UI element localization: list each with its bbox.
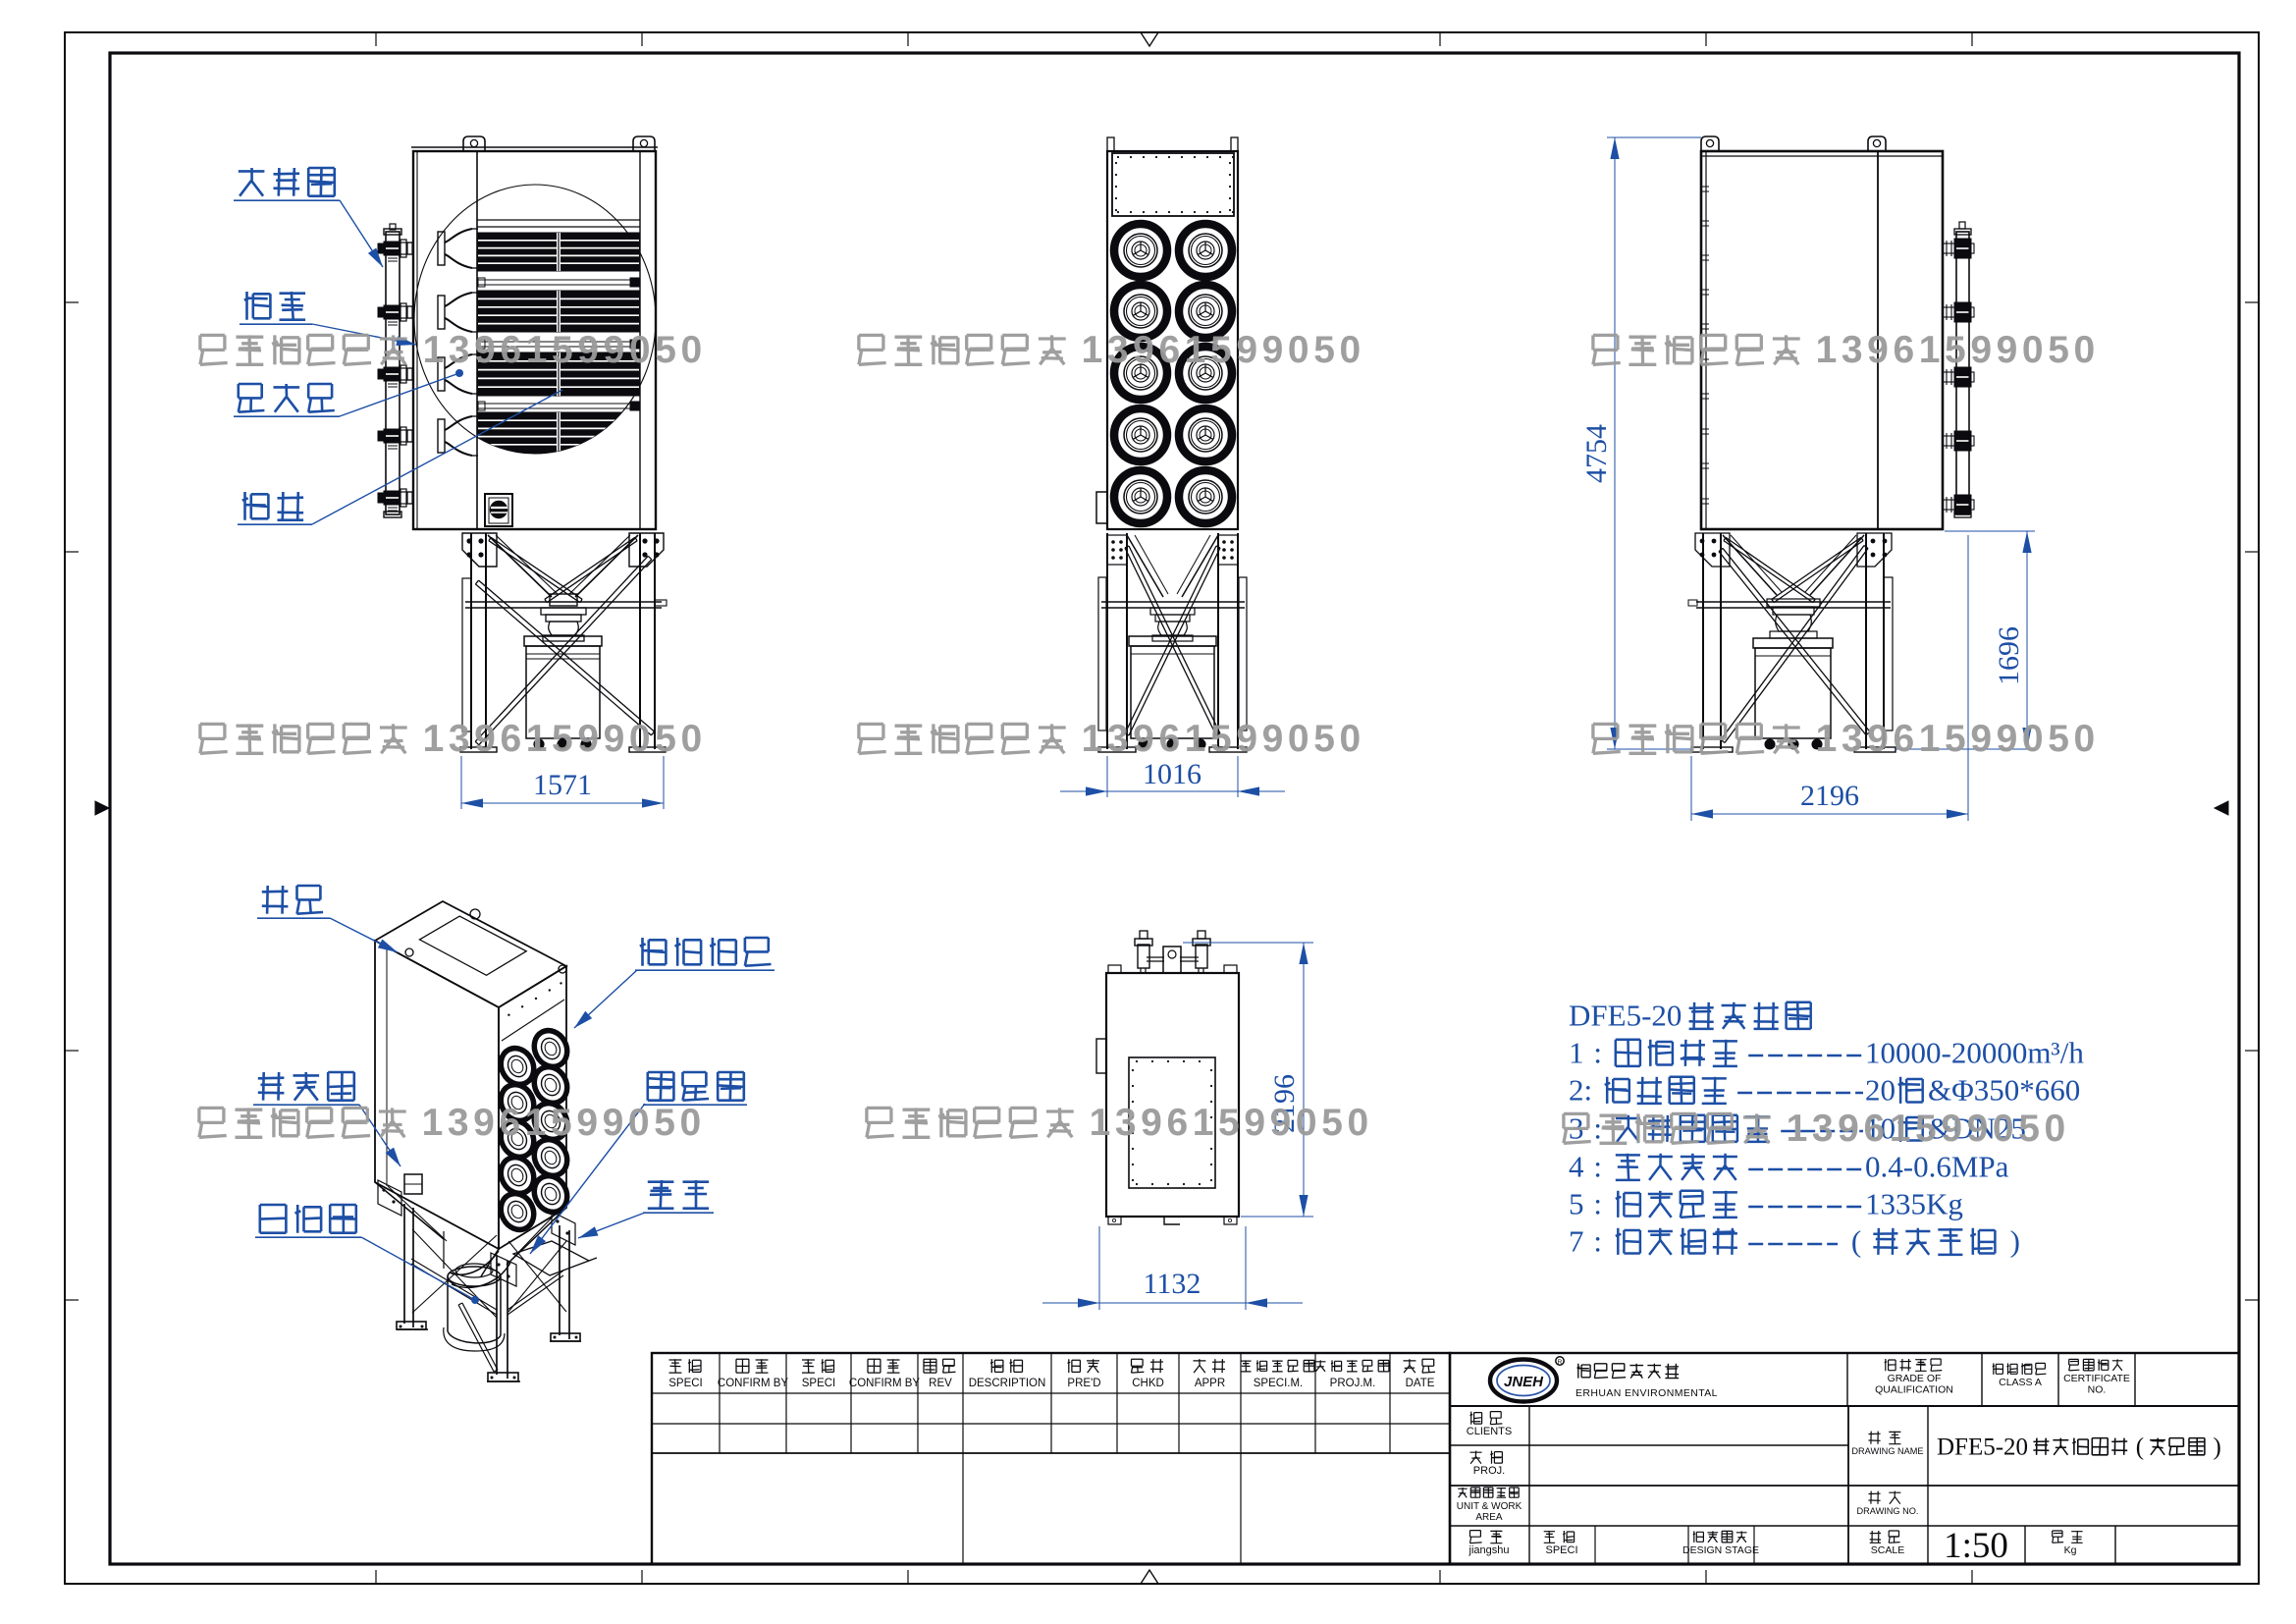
svg-text:REV: REV <box>929 1378 952 1389</box>
svg-text:SPECI: SPECI <box>668 1378 703 1389</box>
svg-text:Kg: Kg <box>2064 1544 2077 1556</box>
svg-text:): ) <box>2010 1224 2020 1259</box>
svg-text:(: ( <box>2136 1435 2144 1461</box>
svg-text:UNIT & WORK: UNIT & WORK <box>1457 1501 1522 1512</box>
svg-text:DESCRIPTION: DESCRIPTION <box>969 1378 1046 1389</box>
svg-text:1571: 1571 <box>533 769 592 801</box>
svg-text:SPECI: SPECI <box>1545 1544 1577 1556</box>
svg-text:CONFIRM BY: CONFIRM BY <box>718 1378 789 1389</box>
svg-text:2:: 2: <box>1569 1073 1592 1108</box>
svg-text:13961599050: 13961599050 <box>1082 329 1365 371</box>
svg-text:4: 4 <box>1569 1150 1584 1184</box>
svg-text::: : <box>1593 1187 1602 1221</box>
svg-text:AREA: AREA <box>1475 1512 1503 1523</box>
svg-text:(: ( <box>1851 1224 1861 1259</box>
svg-text:4754: 4754 <box>1580 424 1613 483</box>
svg-text:PRE'D: PRE'D <box>1067 1378 1100 1389</box>
svg-text:1696: 1696 <box>1993 626 2025 685</box>
svg-text:13961599050: 13961599050 <box>1816 329 2100 371</box>
svg-text:DFE5-20: DFE5-20 <box>1569 999 1682 1033</box>
svg-text:DRAWING NAME: DRAWING NAME <box>1851 1446 1923 1456</box>
svg-text:CHKD: CHKD <box>1132 1378 1164 1389</box>
svg-text:SCALE: SCALE <box>1871 1544 1904 1556</box>
svg-text:NO.: NO. <box>2088 1384 2107 1396</box>
svg-text:1016: 1016 <box>1143 758 1201 790</box>
svg-text:1: 1 <box>1569 1036 1584 1070</box>
svg-text::: : <box>1593 1150 1602 1184</box>
svg-text:DESIGN STAGE: DESIGN STAGE <box>1682 1544 1759 1556</box>
svg-text:PROJ.M.: PROJ.M. <box>1330 1378 1376 1389</box>
svg-text:20: 20 <box>1865 1073 1896 1108</box>
svg-text:DRAWING NO.: DRAWING NO. <box>1857 1506 1919 1516</box>
svg-text:13961599050: 13961599050 <box>1816 718 2100 760</box>
svg-text:13961599050: 13961599050 <box>422 1102 706 1144</box>
svg-text:5: 5 <box>1569 1187 1584 1221</box>
svg-text:): ) <box>2214 1435 2221 1461</box>
svg-text:13961599050: 13961599050 <box>1082 718 1365 760</box>
svg-text:CONFIRM BY: CONFIRM BY <box>849 1378 921 1389</box>
svg-text:13961599050: 13961599050 <box>1090 1102 1373 1144</box>
svg-text:2196: 2196 <box>1800 780 1859 812</box>
svg-text:0.4-0.6MPa: 0.4-0.6MPa <box>1865 1150 2009 1184</box>
svg-text:DATE: DATE <box>1406 1378 1435 1389</box>
svg-text::: : <box>1593 1224 1602 1259</box>
svg-text:ERHUAN ENVIRONMENTAL: ERHUAN ENVIRONMENTAL <box>1575 1387 1718 1399</box>
svg-text:PROJ.: PROJ. <box>1473 1465 1505 1477</box>
svg-text:SPECI.M.: SPECI.M. <box>1254 1378 1303 1389</box>
svg-text:10000-20000m³/h: 10000-20000m³/h <box>1865 1036 2084 1070</box>
svg-text:CERTIFICATE: CERTIFICATE <box>2063 1373 2130 1384</box>
svg-text:DFE5-20: DFE5-20 <box>1937 1435 2028 1461</box>
svg-text:1335Kg: 1335Kg <box>1865 1187 1963 1221</box>
svg-text:SPECI: SPECI <box>802 1378 836 1389</box>
svg-text::: : <box>1593 1036 1602 1070</box>
svg-text:7: 7 <box>1569 1224 1584 1259</box>
svg-text:R: R <box>1558 1359 1563 1366</box>
svg-text:13961599050: 13961599050 <box>423 718 707 760</box>
svg-text:GRADE OF: GRADE OF <box>1888 1373 1942 1384</box>
svg-text:1132: 1132 <box>1144 1268 1201 1300</box>
svg-text:jiangshu: jiangshu <box>1468 1544 1510 1556</box>
svg-text:CLASS A: CLASS A <box>1999 1377 2042 1388</box>
svg-text:JNEH: JNEH <box>1504 1374 1544 1390</box>
svg-text:APPR: APPR <box>1195 1378 1225 1389</box>
svg-text:QUALIFICATION: QUALIFICATION <box>1875 1384 1953 1396</box>
svg-text:CLIENTS: CLIENTS <box>1467 1426 1512 1437</box>
svg-text:1:50: 1:50 <box>1944 1526 2008 1566</box>
svg-text:&Φ350*660: &Φ350*660 <box>1928 1073 2080 1108</box>
svg-text:13961599050: 13961599050 <box>1787 1108 2070 1150</box>
svg-text:13961599050: 13961599050 <box>423 329 707 371</box>
